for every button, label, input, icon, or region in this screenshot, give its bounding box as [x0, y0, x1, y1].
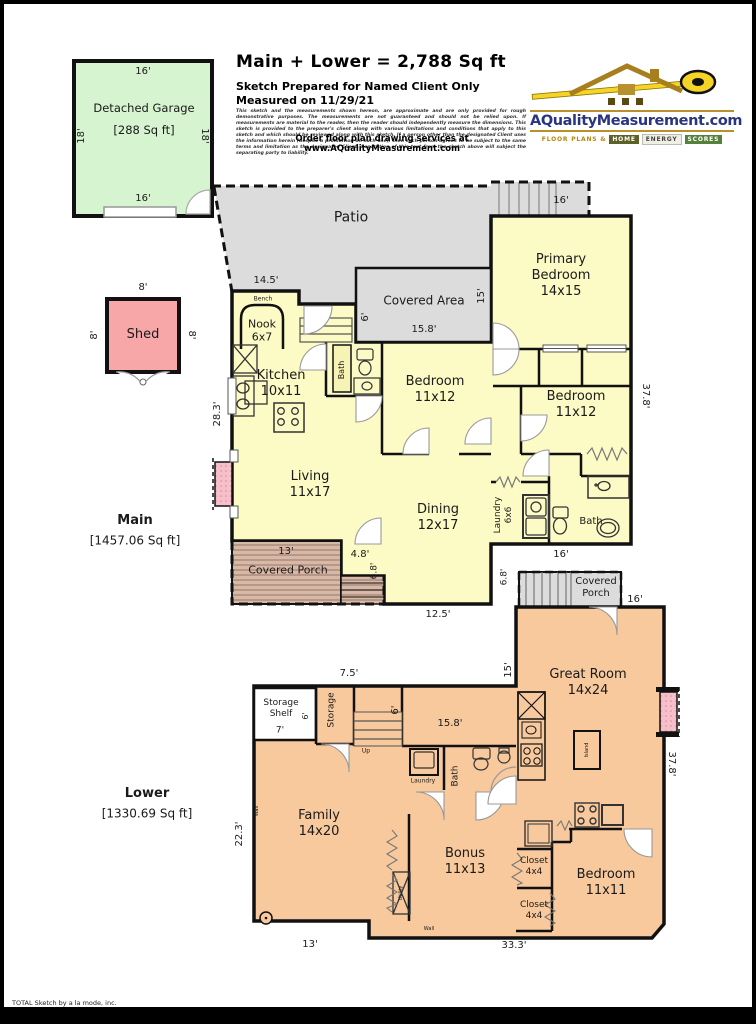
dim-shed-left: 8'	[89, 330, 101, 339]
area-main-level: [1457.06 Sq ft]	[90, 534, 181, 549]
room-living: Living 11x17	[290, 469, 331, 501]
dim-lower-left: 22.3'	[234, 821, 246, 846]
dim-lower-bottom-left: 13'	[302, 939, 317, 951]
dim-main-bath-bottom: 16'	[553, 549, 568, 561]
room-covered-area: Covered Area	[383, 294, 464, 309]
dim-nook-top: 14.5'	[253, 275, 278, 287]
label-main-level: Main	[117, 513, 152, 529]
room-bath-main: Bath	[579, 516, 602, 528]
dim-covered-area-width: 15.8'	[411, 324, 436, 336]
room-closet-2: Closet 4x4	[520, 900, 548, 922]
room-covered-porch-lower: Covered Porch	[575, 576, 617, 600]
dim-storage-top: 7.5'	[340, 668, 359, 680]
sketch-page: Main + Lower = 2,788 Sq ft Sketch Prepar…	[0, 0, 756, 1024]
dim-shed-right: 8'	[185, 330, 197, 339]
room-bedroom-1: Bedroom 11x12	[406, 374, 465, 406]
label-wall-bottom: Wall	[424, 926, 434, 932]
label-utility: Utility	[398, 886, 404, 901]
room-detached-garage: Detached Garage	[93, 101, 194, 115]
room-laundry-main: Laundry 6x6	[493, 497, 515, 534]
room-kitchen: Kitchen 10x11	[257, 368, 306, 400]
dim-covered-area-right: 15'	[476, 288, 488, 303]
dim-main-bottom: 12.5'	[425, 609, 450, 621]
dim-stairs-right: 6'	[390, 705, 402, 714]
dim-deck-top: 16'	[553, 195, 568, 207]
label-island: Island	[584, 743, 590, 758]
label-wall-left: Wall	[254, 806, 260, 816]
room-laundry-lower: Laundry	[411, 777, 435, 784]
room-family: Family 14x20	[298, 808, 340, 840]
dim-covered-area-left: 6'	[360, 312, 372, 321]
dim-lower-porch-right: 16'	[627, 594, 642, 606]
dim-lower-right: 37.8'	[665, 751, 677, 776]
dim-porch-step: 4.8'	[351, 549, 370, 561]
dim-porch-depth: 6.8'	[370, 563, 381, 580]
dim-garage-top: 16'	[135, 66, 150, 78]
room-primary-bedroom: Primary Bedroom 14x15	[532, 252, 591, 300]
page-bottom-bar	[4, 1007, 752, 1020]
room-dining: Dining 12x17	[417, 502, 459, 534]
dim-main-left: 28.3'	[212, 401, 224, 426]
room-covered-porch-main: Covered Porch	[248, 563, 328, 576]
dim-garage-bottom: 16'	[135, 193, 150, 205]
room-bedroom-lower: Bedroom 11x11	[577, 867, 636, 899]
room-closet-1: Closet 4x4	[520, 856, 548, 878]
dim-lower-bottom: 33.3'	[501, 940, 526, 952]
dim-lower-porch-left: 6.8'	[500, 569, 511, 586]
label-stairs-up: Up	[362, 747, 370, 754]
label-lower-level: Lower	[125, 786, 169, 802]
room-shed: Shed	[127, 327, 160, 343]
dim-shed-top: 8'	[138, 282, 147, 294]
room-nook: Nook 6x7	[248, 318, 276, 345]
room-great-room: Great Room 14x24	[549, 667, 626, 699]
area-detached-garage: [288 Sq ft]	[113, 123, 174, 137]
dim-storage-shelf: 6'	[301, 712, 311, 719]
room-storage-shelf: Storage Shelf	[263, 698, 298, 720]
room-bath-main-hall: Bath	[337, 361, 347, 380]
room-bedroom-2: Bedroom 11x12	[547, 389, 606, 421]
room-storage: Storage	[327, 692, 338, 727]
dim-lower-hall: 15.8'	[437, 718, 462, 730]
dim-main-right: 37.8'	[639, 383, 651, 408]
label-bench: Bench	[254, 295, 273, 302]
footer-credit: TOTAL Sketch by a la mode, inc.	[12, 999, 117, 1007]
area-lower-level: [1330.69 Sq ft]	[102, 807, 193, 822]
room-patio: Patio	[334, 209, 368, 226]
dim-porch-width: 13'	[278, 546, 293, 558]
plan-labels-layer: 16'Detached Garage[288 Sq ft]18'18'16'8'…	[4, 4, 752, 1020]
room-bath-lower: Bath	[451, 766, 462, 787]
dim-garage-left: 18'	[76, 128, 88, 143]
dim-great-room-left: 15'	[503, 662, 515, 677]
dim-garage-right: 18'	[198, 128, 210, 143]
room-bonus: Bonus 11x13	[445, 846, 486, 878]
dim-storage-shelf-w: 7'	[276, 726, 284, 737]
